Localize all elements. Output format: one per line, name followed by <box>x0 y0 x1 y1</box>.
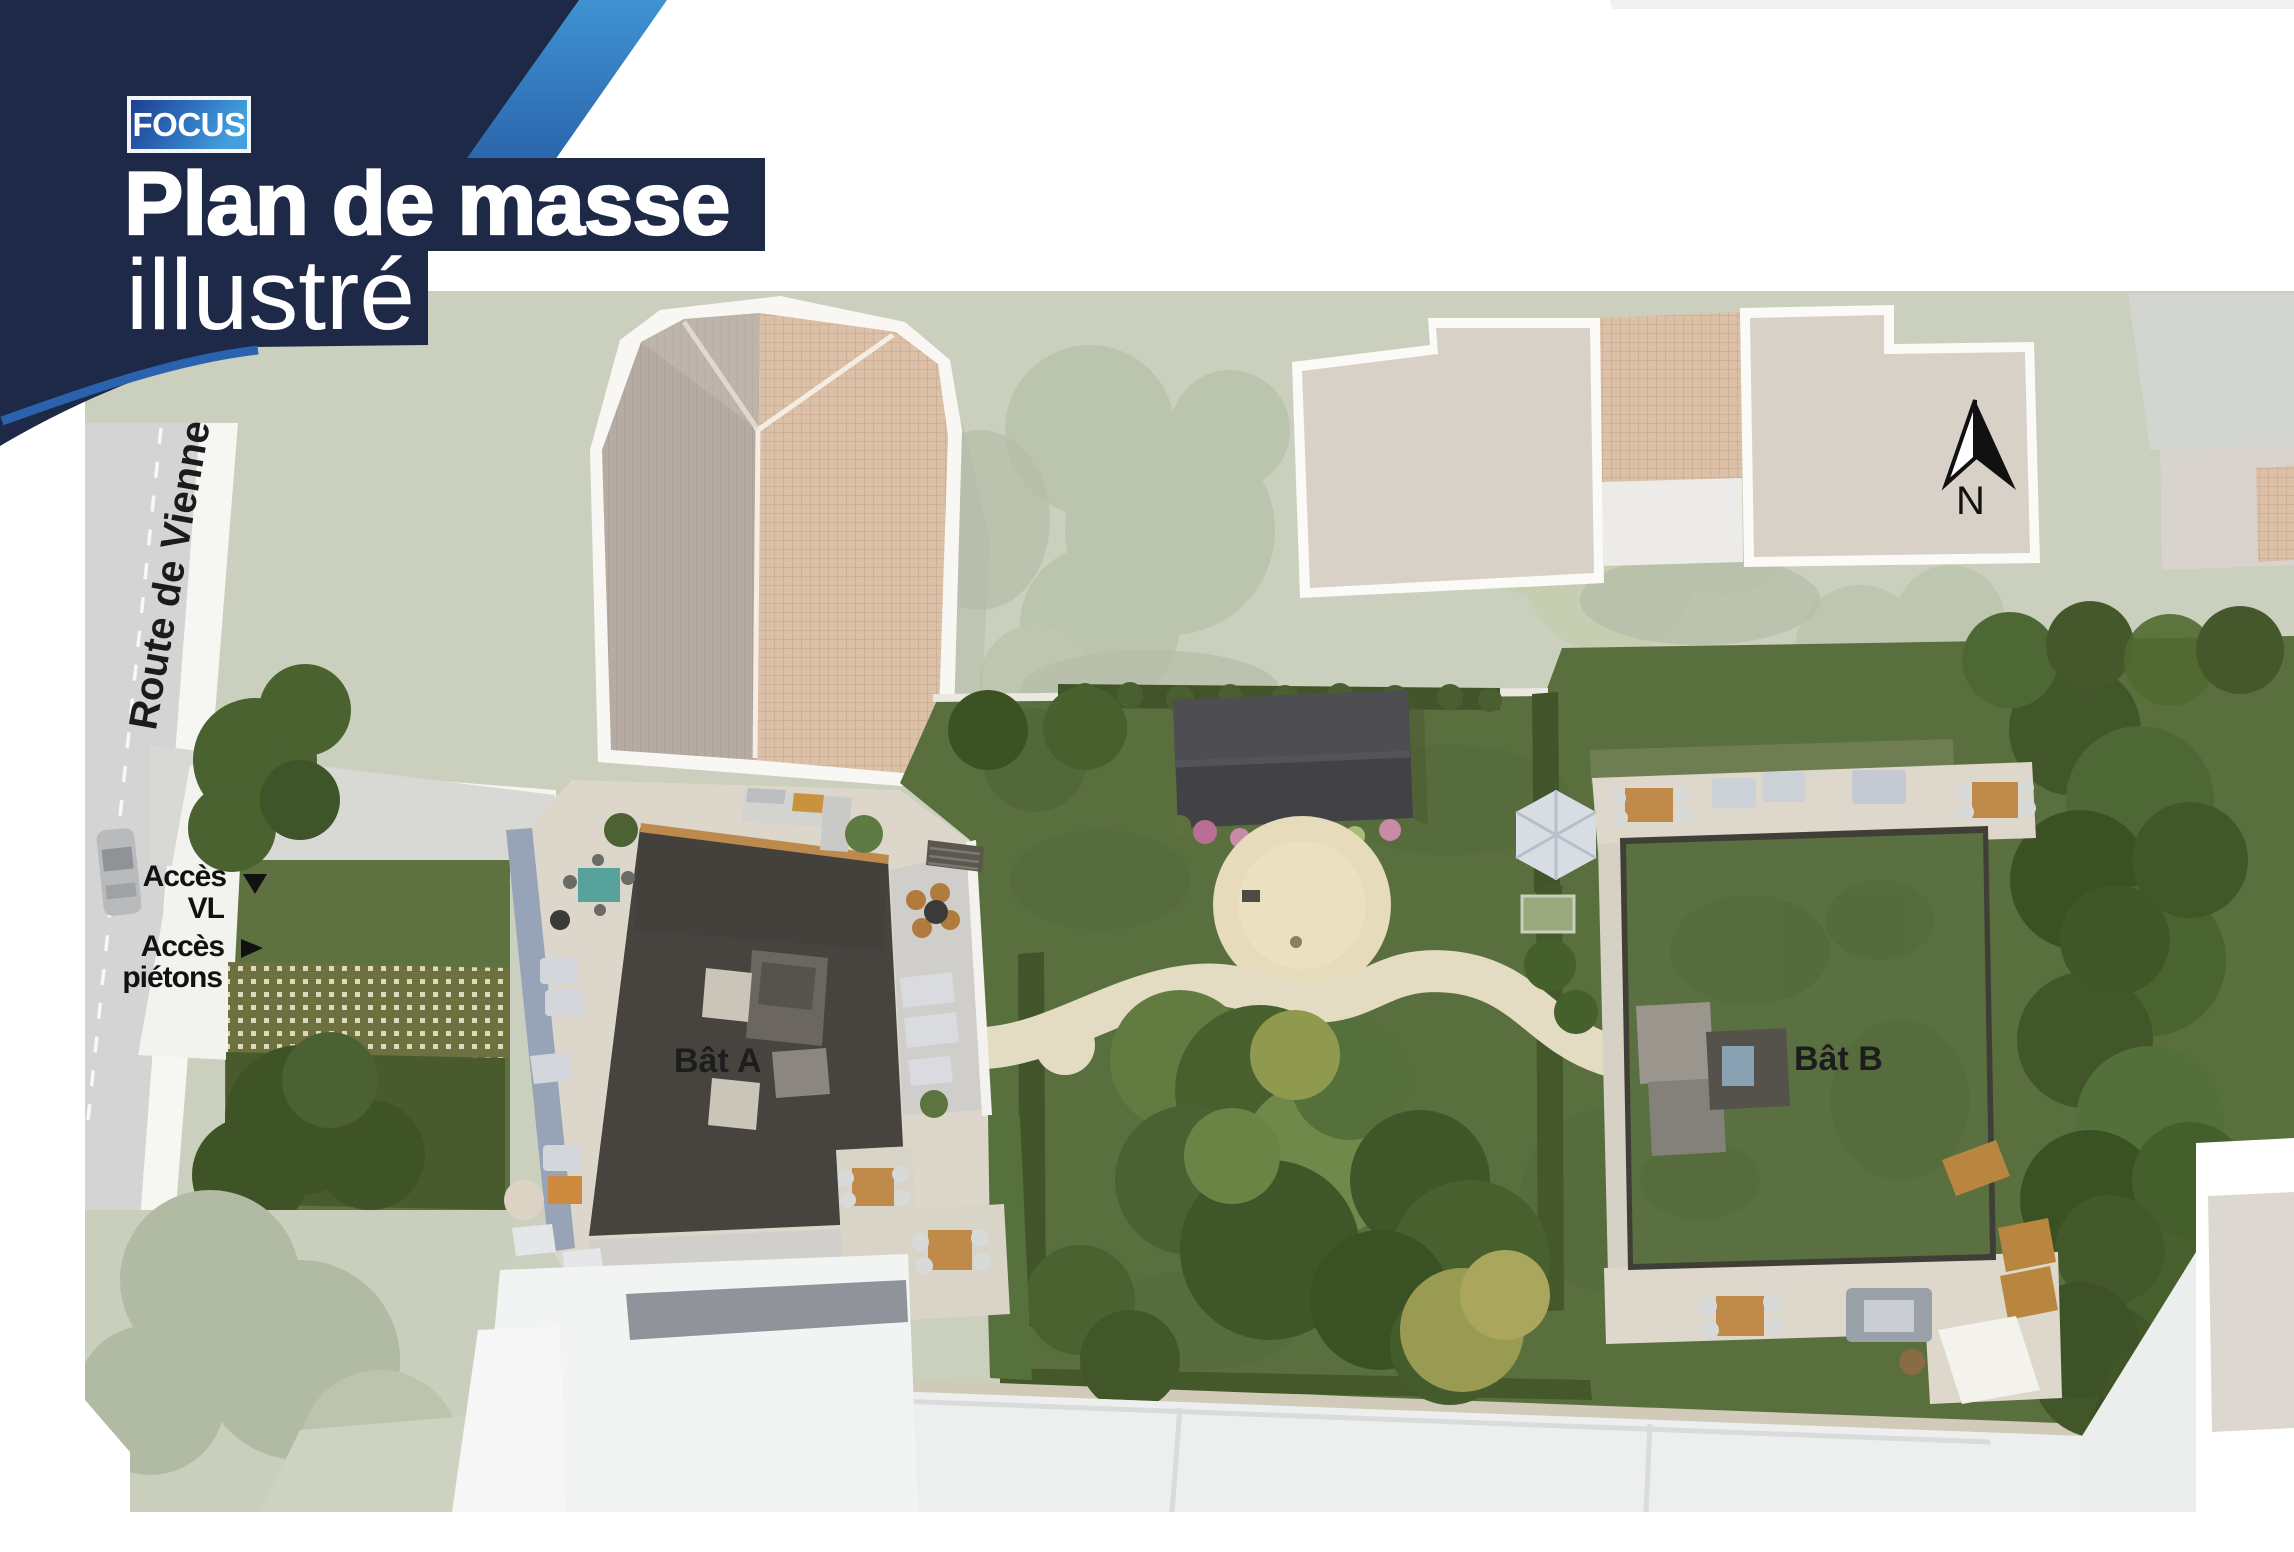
svg-text:Accès: Accès <box>141 930 225 963</box>
svg-text:piétons: piétons <box>122 961 222 994</box>
svg-text:Plan de masse: Plan de masse <box>124 153 729 253</box>
svg-text:Accès: Accès <box>143 860 227 893</box>
svg-text:N: N <box>1956 479 1985 523</box>
svg-text:illustré: illustré <box>126 239 415 351</box>
svg-text:Bât A: Bât A <box>674 1042 762 1080</box>
svg-text:VL: VL <box>188 892 225 925</box>
svg-text:Bât B: Bât B <box>1794 1040 1883 1078</box>
svg-text:FOCUS: FOCUS <box>133 106 246 143</box>
